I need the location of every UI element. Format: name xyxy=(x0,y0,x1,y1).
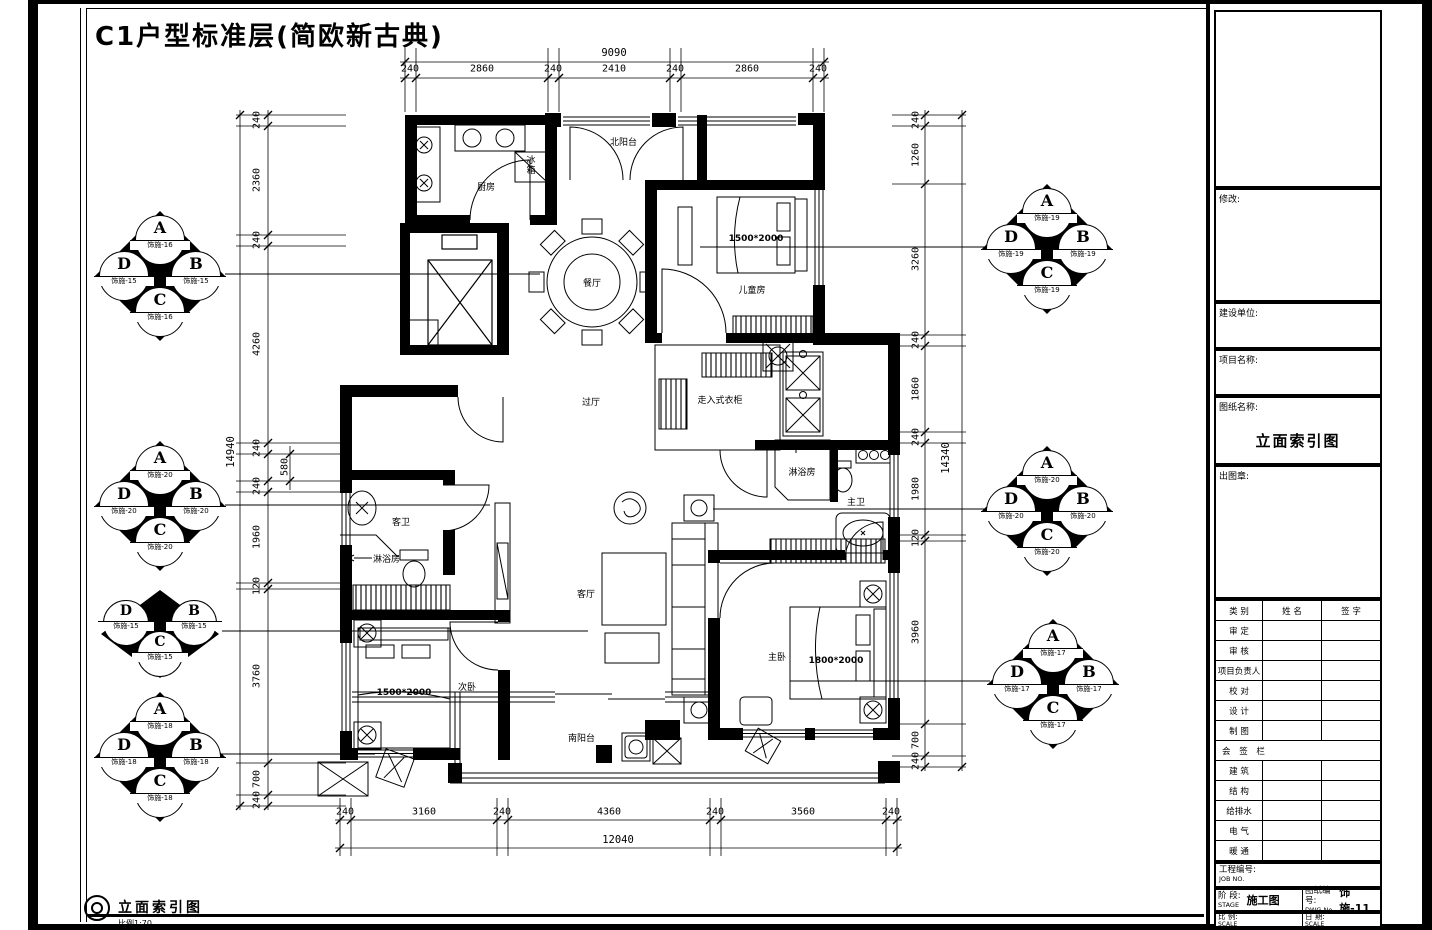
marker-letter: D xyxy=(100,252,148,276)
stage-value: 施工图 xyxy=(1247,892,1280,908)
marker-letter: C xyxy=(1023,261,1071,285)
dim-top-total: 9090 xyxy=(601,47,626,59)
marker-letter: D xyxy=(993,660,1041,684)
row-sign-cell xyxy=(1322,841,1380,860)
elevation-marker-mid-right[interactable]: A 饰施-20 D 饰施-20 B 饰施-20 C 饰施-20 xyxy=(982,446,1112,576)
label-second-bedroom: 次卧 xyxy=(458,681,476,693)
row-name-cell xyxy=(1263,721,1322,740)
stamp-label: 出图章: xyxy=(1219,469,1249,482)
marker-letter: A xyxy=(1029,624,1077,648)
row-sign-cell xyxy=(1322,801,1380,820)
row-name-cell xyxy=(1263,621,1322,640)
dim-left-8: 120 xyxy=(252,577,263,595)
marker-circle-c: C 饰施-18 xyxy=(135,768,185,818)
elevation-marker-top-right[interactable]: A 饰施-19 D 饰施-19 B 饰施-19 C 饰施-19 xyxy=(982,184,1112,314)
marker-circle-c: C 饰施-15 xyxy=(137,631,183,677)
row-label: 建 筑 xyxy=(1216,761,1263,780)
elevation-marker-top-left[interactable]: A 饰施-16 D 饰施-15 B 饰施-15 C 饰施-16 xyxy=(95,211,225,341)
table-row: 制 图 xyxy=(1216,720,1380,740)
row-name-cell xyxy=(1263,841,1322,860)
dim-left-total: 14940 xyxy=(225,436,237,468)
marker-ref: 饰施-17 xyxy=(1023,720,1083,730)
label-master-bath: 主卫 xyxy=(847,496,865,508)
dim-right-2: 3260 xyxy=(911,247,922,271)
row-name-cell xyxy=(1263,641,1322,660)
dim-bot-total: 12040 xyxy=(602,834,634,846)
table-row: 建 筑 xyxy=(1216,760,1380,780)
row-sign-cell xyxy=(1322,681,1380,700)
dim-bot-1: 3160 xyxy=(412,807,436,818)
titleblock-project-box: 项目名称: xyxy=(1214,349,1382,396)
row-label: 审 核 xyxy=(1216,641,1263,660)
marker-ref: 饰施-19 xyxy=(981,249,1041,259)
marker-letter: A xyxy=(1023,189,1071,213)
table-row: 项目负责人 xyxy=(1216,660,1380,680)
row-name-cell xyxy=(1263,661,1322,680)
dwg-label: 图纸编号: xyxy=(1305,886,1339,906)
signature-table: 类 别 姓 名 签 字 审 定 审 核 项目负责人 校 对 设 计 制 图 会 … xyxy=(1214,599,1382,862)
marker-ref: 饰施-19 xyxy=(1053,249,1113,259)
job-no-en: JOB NO. xyxy=(1219,875,1377,883)
marker-circle-c: C 饰施-20 xyxy=(1022,522,1072,572)
elevation-marker-mid-left[interactable]: A 饰施-20 D 饰施-20 B 饰施-20 C 饰施-20 xyxy=(95,441,225,571)
marker-ref: 饰施-16 xyxy=(130,312,190,322)
label-kids-bed: 1500*2000 xyxy=(729,234,784,244)
dim-left-4: 240 xyxy=(252,439,263,457)
dim-right-total: 14340 xyxy=(940,442,952,474)
titleblock-drawing-name-box: 图纸名称: 立面索引图 xyxy=(1214,396,1382,465)
marker-ref: 饰施-19 xyxy=(1017,213,1077,223)
page-title: C1户型标准层(简欧新古典) xyxy=(95,16,444,53)
label-kids-room: 儿童房 xyxy=(738,284,765,296)
dim-left-3: 4260 xyxy=(252,332,263,356)
titleblock-stamp-box: 出图章: xyxy=(1214,465,1382,599)
label-dining: 餐厅 xyxy=(583,277,601,289)
table-row: 暖 通 xyxy=(1216,840,1380,860)
row-sign-cell xyxy=(1322,721,1380,740)
dim-left-2: 240 xyxy=(252,231,263,249)
marker-circle-c: C 饰施-19 xyxy=(1022,260,1072,310)
marker-circle-c: C 饰施-16 xyxy=(135,287,185,337)
drawing-name-label: 图纸名称: xyxy=(1219,400,1258,413)
marker-letter: B xyxy=(1059,487,1107,511)
row-name-cell xyxy=(1263,761,1322,780)
view-reference-bubble xyxy=(84,895,110,921)
titleblock-empty-box xyxy=(1214,10,1382,188)
label-kitchen: 厨房 xyxy=(477,181,495,193)
table-row: 电 气 xyxy=(1216,820,1380,840)
label-fridge-2: 箱 xyxy=(526,164,535,176)
dim-bot-0: 240 xyxy=(336,807,354,818)
date-cell: 日 期: SCALE xyxy=(1303,914,1380,926)
dim-left-11: 240 xyxy=(252,791,263,809)
marker-ref: 饰施-20 xyxy=(130,470,190,480)
marker-letter: C xyxy=(1029,696,1077,720)
row-label: 项目负责人 xyxy=(1216,661,1263,680)
scale-label: 比 例: xyxy=(1218,913,1238,921)
label-south-balcony: 南阳台 xyxy=(568,732,595,744)
marker-letter: D xyxy=(987,225,1035,249)
table-row: 校 对 xyxy=(1216,680,1380,700)
marker-ref: 饰施-20 xyxy=(981,511,1041,521)
dim-right-3: 240 xyxy=(911,331,922,349)
footer-rule xyxy=(88,914,1204,917)
marker-letter: C xyxy=(138,632,182,652)
marker-letter: B xyxy=(1065,660,1113,684)
stage-cell: 阶 段: STAGE 施工图 xyxy=(1216,890,1303,910)
marker-letter: C xyxy=(136,769,184,793)
marker-ref: 饰施-20 xyxy=(1017,475,1077,485)
revision-label: 修改: xyxy=(1219,192,1240,205)
row-sign-cell xyxy=(1322,641,1380,660)
scale-cell: 比 例: SCALE xyxy=(1216,914,1303,926)
label-walkin-closet: 走入式衣柜 xyxy=(697,394,742,406)
row-label: 校 对 xyxy=(1216,681,1263,700)
dim-left-10: 700 xyxy=(252,770,263,788)
label-hallway: 过厅 xyxy=(582,396,600,408)
dim-top-5: 2860 xyxy=(735,64,759,75)
dim-right-4: 1860 xyxy=(911,377,922,401)
scale-date-box: 比 例: SCALE 日 期: SCALE xyxy=(1214,912,1382,928)
label-north-balcony: 北阳台 xyxy=(610,136,637,148)
marker-letter: A xyxy=(1023,451,1071,475)
footer-scale-note: 比例1:70 xyxy=(118,918,152,929)
row-name-cell xyxy=(1263,681,1322,700)
elevation-marker-bottom-right[interactable]: A 饰施-17 D 饰施-17 B 饰施-17 C 饰施-17 xyxy=(988,619,1118,749)
table-row: 审 核 xyxy=(1216,640,1380,660)
dim-right-10: 240 xyxy=(911,752,922,770)
dim-top-4: 240 xyxy=(666,64,684,75)
dim-top-1: 2860 xyxy=(470,64,494,75)
marker-letter: B xyxy=(172,252,220,276)
row-name-cell xyxy=(1263,801,1322,820)
marker-letter: C xyxy=(136,518,184,542)
dim-top-2: 240 xyxy=(544,64,562,75)
marker-ref: 饰施-17 xyxy=(987,684,1047,694)
row-sign-cell xyxy=(1322,821,1380,840)
marker-ref: 饰施-20 xyxy=(166,506,226,516)
dim-bot-5: 3560 xyxy=(791,807,815,818)
dim-right-7: 120 xyxy=(911,529,922,547)
row-sign-cell xyxy=(1322,781,1380,800)
dim-left-0: 240 xyxy=(252,111,263,129)
marker-letter: A xyxy=(136,216,184,240)
marker-letter: A xyxy=(136,697,184,721)
stage-dwg-box: 阶 段: STAGE 施工图 图纸编号: DWG No. 饰施-11 xyxy=(1214,888,1382,912)
elevation-marker-bottom-left-lower[interactable]: A 饰施-18 D 饰施-18 B 饰施-18 C 饰施-18 xyxy=(95,692,225,822)
titleblock-revision-box: 修改: xyxy=(1214,188,1382,302)
marker-ref: 饰施-17 xyxy=(1023,648,1083,658)
marker-ref: 饰施-16 xyxy=(130,240,190,250)
dim-right-8: 3960 xyxy=(911,620,922,644)
row-sign-cell xyxy=(1322,701,1380,720)
marker-ref: 饰施-19 xyxy=(1017,285,1077,295)
table-header-row: 类 别 姓 名 签 字 xyxy=(1216,601,1380,620)
dim-bot-2: 240 xyxy=(493,807,511,818)
second-bedroom-furniture xyxy=(318,620,450,796)
row-label: 电 气 xyxy=(1216,821,1263,840)
header-signature: 签 字 xyxy=(1322,601,1380,620)
row-name-cell xyxy=(1263,781,1322,800)
project-label: 项目名称: xyxy=(1219,353,1258,366)
row-sign-cell xyxy=(1322,621,1380,640)
label-master-bed: 1800*2000 xyxy=(809,656,864,666)
dim-bot-4: 240 xyxy=(706,807,724,818)
dwg-cell: 图纸编号: DWG No. 饰施-11 xyxy=(1303,890,1380,910)
marker-ref: 饰施-20 xyxy=(1053,511,1113,521)
dim-right-5: 240 xyxy=(911,428,922,446)
marker-ref: 饰施-15 xyxy=(98,621,154,631)
marker-ref: 饰施-18 xyxy=(166,757,226,767)
label-master-bedroom: 主卧 xyxy=(768,651,786,663)
dim-right-6: 1980 xyxy=(911,477,922,501)
stage-en: STAGE xyxy=(1218,901,1241,909)
header-category: 类 别 xyxy=(1216,601,1263,620)
label-second-bed: 1500*2000 xyxy=(377,688,432,698)
bubble-inner-circle xyxy=(91,902,103,914)
marker-circle-c: C 饰施-17 xyxy=(1028,695,1078,745)
marker-letter: D xyxy=(987,487,1035,511)
row-label: 结 构 xyxy=(1216,781,1263,800)
dim-right-9: 700 xyxy=(911,731,922,749)
dim-top-3: 2410 xyxy=(602,64,626,75)
sign-section-label: 会 签 栏 xyxy=(1216,741,1380,760)
dim-left-9: 3760 xyxy=(252,664,263,688)
row-label: 审 定 xyxy=(1216,621,1263,640)
label-guest-shower: 淋浴房 xyxy=(373,553,400,565)
marker-ref: 饰施-18 xyxy=(94,757,154,767)
dim-left-5: 580 xyxy=(280,458,291,476)
row-label: 制 图 xyxy=(1216,721,1263,740)
row-sign-cell xyxy=(1322,661,1380,680)
job-no-label: 工程编号: xyxy=(1219,865,1377,875)
date-en: SCALE xyxy=(1305,921,1325,928)
drawing-name: 立面索引图 xyxy=(1216,430,1380,451)
cad-sheet: { "page_title": "C1户型标准层(简欧新古典)", "plan"… xyxy=(0,0,1432,930)
row-label: 暖 通 xyxy=(1216,841,1263,860)
marker-letter: D xyxy=(104,601,148,621)
label-living-room: 客厅 xyxy=(577,588,595,600)
living-room-furniture xyxy=(495,492,718,723)
dim-left-6: 240 xyxy=(252,477,263,495)
titleblock-client-box: 建设单位: xyxy=(1214,302,1382,349)
table-row: 设 计 xyxy=(1216,700,1380,720)
dim-bot-6: 240 xyxy=(882,807,900,818)
marker-ref: 饰施-20 xyxy=(130,542,190,552)
marker-ref: 饰施-15 xyxy=(166,276,226,286)
elevation-marker-bottom-left-upper[interactable]: D 饰施-15 B 饰施-15 C 饰施-15 xyxy=(95,587,225,681)
dim-left-7: 1960 xyxy=(252,525,263,549)
marker-letter: B xyxy=(172,482,220,506)
dim-top-0: 240 xyxy=(401,64,419,75)
client-label: 建设单位: xyxy=(1219,306,1258,319)
row-label: 设 计 xyxy=(1216,701,1263,720)
row-label: 给排水 xyxy=(1216,801,1263,820)
dim-top-6: 240 xyxy=(809,64,827,75)
marker-ref: 饰施-15 xyxy=(166,621,222,631)
dim-left-1: 2360 xyxy=(252,168,263,192)
table-row: 给排水 xyxy=(1216,800,1380,820)
table-row: 结 构 xyxy=(1216,780,1380,800)
marker-letter: B xyxy=(1059,225,1107,249)
marker-letter: D xyxy=(100,482,148,506)
marker-letter: B xyxy=(172,601,216,621)
label-guest-bath: 客卫 xyxy=(392,516,410,528)
dim-right-0: 240 xyxy=(911,111,922,129)
marker-circle-c: C 饰施-20 xyxy=(135,517,185,567)
marker-ref: 饰施-18 xyxy=(130,793,190,803)
marker-ref: 饰施-20 xyxy=(94,506,154,516)
sign-section-row: 会 签 栏 xyxy=(1216,740,1380,760)
dim-right-1: 1260 xyxy=(911,143,922,167)
marker-ref: 饰施-15 xyxy=(94,276,154,286)
floor-plan[interactable]: 厨房 北阳台 冰 箱 餐厅 儿童房 1500*2000 过厅 走入式衣柜 淋浴房… xyxy=(300,95,980,815)
dim-bot-3: 4360 xyxy=(597,807,621,818)
marker-letter: B xyxy=(172,733,220,757)
table-row: 审 定 xyxy=(1216,620,1380,640)
walls xyxy=(340,113,900,783)
marker-ref: 饰施-18 xyxy=(130,721,190,731)
date-label: 日 期: xyxy=(1305,913,1325,921)
marker-ref: 饰施-15 xyxy=(132,652,188,662)
row-name-cell xyxy=(1263,701,1322,720)
marker-ref: 饰施-17 xyxy=(1059,684,1119,694)
marker-letter: C xyxy=(136,288,184,312)
row-sign-cell xyxy=(1322,761,1380,780)
scale-en: SCALE xyxy=(1218,921,1238,928)
stage-label: 阶 段: xyxy=(1218,891,1241,901)
label-fridge-1: 冰 xyxy=(526,154,535,166)
label-shower-room: 淋浴房 xyxy=(788,466,815,478)
guest-bath-fixtures xyxy=(340,491,450,610)
header-name: 姓 名 xyxy=(1263,601,1322,620)
marker-letter: A xyxy=(136,446,184,470)
marker-ref: 饰施-20 xyxy=(1017,547,1077,557)
marker-letter: C xyxy=(1023,523,1071,547)
row-name-cell xyxy=(1263,821,1322,840)
marker-letter: D xyxy=(100,733,148,757)
